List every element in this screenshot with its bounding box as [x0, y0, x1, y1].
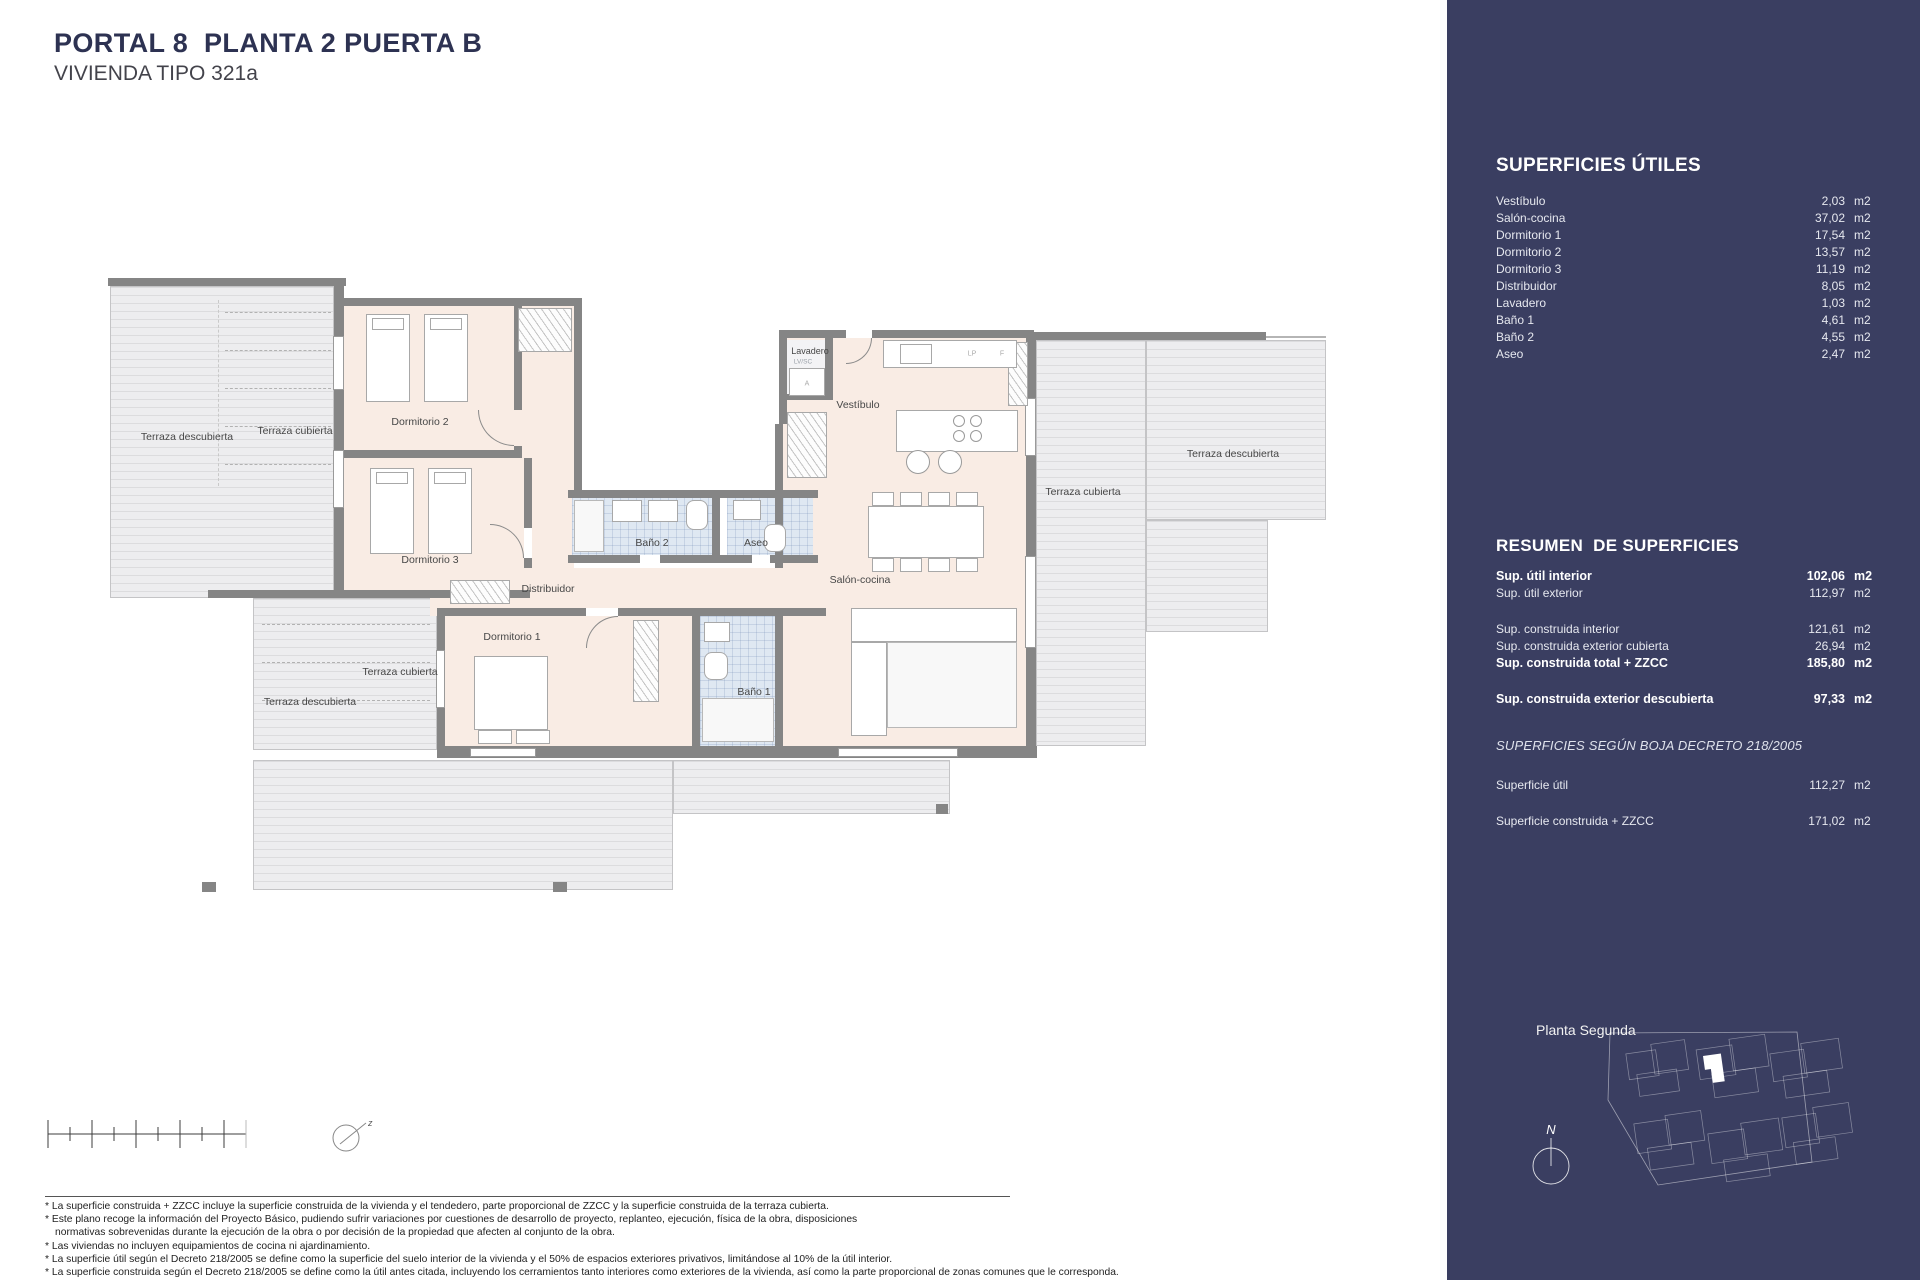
terrace-left-open-label: Terraza descubierta: [141, 431, 233, 443]
surface-row: Dormitorio 311,19m2: [1496, 261, 1878, 278]
door-gap: [586, 608, 618, 616]
surface-unit: m2: [1854, 691, 1878, 708]
surface-row: Sup. construida exterior descubierta97,3…: [1496, 691, 1878, 708]
svg-text:N: N: [1546, 1122, 1556, 1137]
surface-row: Baño 24,55m2: [1496, 329, 1878, 346]
surface-label: Dormitorio 1: [1496, 227, 1789, 244]
surface-unit: m2: [1854, 295, 1878, 312]
surface-label: Sup. construida total + ZZCC: [1496, 655, 1789, 672]
surface-row: Dormitorio 117,54m2: [1496, 227, 1878, 244]
surface-unit: m2: [1854, 568, 1878, 585]
bano1-label: Baño 1: [737, 686, 770, 698]
wardrobe: [450, 580, 510, 604]
chair: [928, 492, 950, 506]
kitchen-lp-label: LP: [968, 351, 977, 358]
cooktop-burner: [953, 415, 965, 427]
window: [436, 650, 445, 708]
door-gap: [752, 555, 770, 563]
surface-row: Sup. construida interior121,61m2: [1496, 621, 1878, 638]
surface-value: 17,54: [1789, 227, 1845, 244]
footnote-divider: [45, 1196, 1010, 1197]
wall: [108, 278, 346, 286]
kitchen-f-label: F: [1000, 351, 1004, 358]
surface-value: 185,80: [1789, 655, 1845, 672]
sink: [612, 500, 642, 522]
chair: [956, 558, 978, 572]
terrace-bottom-covered-label: Terraza cubierta: [362, 666, 437, 678]
surface-label: Superficie útil: [1496, 777, 1789, 794]
window: [333, 450, 344, 508]
footnote-line: * La superficie construida según el Decr…: [45, 1266, 1265, 1279]
footnote-line: * Este plano recoge la información del P…: [45, 1213, 1265, 1226]
resumen-table: Sup. útil interior102,06m2Sup. útil exte…: [1496, 568, 1878, 708]
wall: [208, 590, 344, 598]
surface-label: Dormitorio 2: [1496, 244, 1789, 261]
pergola-line: [262, 662, 430, 663]
lavadero-a-label: A: [805, 381, 810, 388]
surface-label: Baño 2: [1496, 329, 1789, 346]
surface-unit: m2: [1854, 655, 1878, 672]
deck-floor: [253, 760, 673, 890]
bano2-label: Baño 2: [635, 537, 668, 549]
surface-row: Vestíbulo2,03m2: [1496, 193, 1878, 210]
pillow: [434, 472, 466, 484]
sink: [733, 500, 761, 520]
door-gap: [640, 555, 660, 563]
surface-row: Sup. útil interior102,06m2: [1496, 568, 1878, 585]
sofa: [851, 608, 1017, 642]
compass-icon: z: [333, 1118, 373, 1151]
surface-unit: m2: [1854, 210, 1878, 227]
surface-value: 11,19: [1789, 261, 1845, 278]
chair: [956, 492, 978, 506]
dormitorio2-label: Dormitorio 2: [391, 416, 448, 428]
surface-row: Dormitorio 213,57m2: [1496, 244, 1878, 261]
surface-value: 8,05: [1789, 278, 1845, 295]
surface-label: Superficie construida + ZZCC: [1496, 813, 1789, 830]
dormitorio3-label: Dormitorio 3: [401, 554, 458, 566]
surface-row: Sup. construida exterior cubierta26,94m2: [1496, 638, 1878, 655]
surface-unit: m2: [1854, 777, 1878, 794]
surface-row: Aseo2,47m2: [1496, 346, 1878, 363]
surface-row: Distribuidor8,05m2: [1496, 278, 1878, 295]
superficies-utiles-table: Vestíbulo2,03m2Salón-cocina37,02m2Dormit…: [1496, 193, 1878, 363]
cooktop-burner: [953, 430, 965, 442]
pillow: [372, 318, 404, 330]
wall: [692, 616, 700, 746]
surface-unit: m2: [1854, 193, 1878, 210]
footnote-line: * La superficie útil según el Decreto 21…: [45, 1253, 1265, 1266]
wall: [344, 298, 582, 306]
distribuidor-label: Distribuidor: [521, 583, 574, 595]
chair: [872, 558, 894, 572]
parapet-line: [1266, 336, 1326, 338]
surface-label: Distribuidor: [1496, 278, 1789, 295]
surface-label: Sup. construida exterior descubierta: [1496, 691, 1789, 708]
surface-value: 13,57: [1789, 244, 1845, 261]
page-subtitle: VIVIENDA TIPO 321a: [54, 62, 258, 86]
wall: [437, 608, 826, 616]
wall: [574, 298, 582, 498]
aseo-label: Aseo: [744, 537, 768, 549]
stool: [938, 450, 962, 474]
bed: [474, 656, 548, 730]
scale-bar: z: [46, 1112, 386, 1162]
surface-value: 1,03: [1789, 295, 1845, 312]
surface-row: Baño 14,61m2: [1496, 312, 1878, 329]
resumen-title: RESUMEN DE SUPERFICIES: [1496, 536, 1878, 556]
pergola-line: [218, 300, 219, 486]
terrace-right-open-floor2: [1146, 520, 1268, 632]
wall: [334, 286, 344, 598]
kitchen-sink: [900, 344, 932, 364]
lavadero-sub-label: LV/SC: [794, 359, 812, 366]
surface-label: Sup. útil interior: [1496, 568, 1789, 585]
surface-row: Lavadero1,03m2: [1496, 295, 1878, 312]
chair: [900, 558, 922, 572]
surface-unit: m2: [1854, 621, 1878, 638]
footnote-line: * La superficie construida + ZZCC incluy…: [45, 1200, 1265, 1213]
surface-value: 37,02: [1789, 210, 1845, 227]
entrance-door-gap: [846, 330, 872, 338]
wall: [344, 450, 522, 458]
window: [1025, 398, 1036, 456]
superficies-utiles-section: SUPERFICIES ÚTILES Vestíbulo2,03m2Salón-…: [1496, 155, 1878, 363]
pillow: [478, 730, 512, 744]
site-plan-map: N: [1497, 1000, 1870, 1240]
building-outlines: [1625, 1034, 1856, 1183]
pergola-line: [225, 388, 331, 389]
surface-unit: m2: [1854, 278, 1878, 295]
surface-label: Sup. construida interior: [1496, 621, 1789, 638]
terrace-right-covered-floor: [1036, 340, 1146, 746]
cooktop-burner: [970, 430, 982, 442]
wall: [712, 497, 720, 555]
surface-unit: m2: [1854, 227, 1878, 244]
pergola-line: [262, 624, 430, 625]
sofa: [851, 642, 887, 736]
sink: [648, 500, 678, 522]
svg-text:z: z: [367, 1118, 373, 1128]
pillow: [430, 318, 462, 330]
surface-value: 4,61: [1789, 312, 1845, 329]
site-boundary: [1608, 1032, 1812, 1185]
surface-unit: m2: [1854, 329, 1878, 346]
surface-label: Sup. construida exterior cubierta: [1496, 638, 1789, 655]
surface-unit: m2: [1854, 585, 1878, 602]
wall: [779, 330, 1034, 338]
surface-label: Dormitorio 3: [1496, 261, 1789, 278]
lavadero-label: Lavadero: [791, 346, 829, 356]
chair: [928, 558, 950, 572]
sink: [704, 622, 730, 642]
terrace-left-covered-label: Terraza cubierta: [257, 425, 332, 437]
deck-post: [936, 804, 948, 814]
salon-cocina-label: Salón-cocina: [830, 574, 891, 586]
chair: [900, 492, 922, 506]
deck-post: [202, 882, 216, 892]
surface-row: Sup. construida total + ZZCC185,80m2: [1496, 655, 1878, 672]
terrace-bottom-open-label: Terraza descubierta: [264, 696, 356, 708]
pillow: [376, 472, 408, 484]
surface-value: 102,06: [1789, 568, 1845, 585]
wall: [779, 330, 787, 424]
surface-row: Salón-cocina37,02m2: [1496, 210, 1878, 227]
surface-label: Baño 1: [1496, 312, 1789, 329]
surface-unit: m2: [1854, 244, 1878, 261]
vestibulo-label: Vestíbulo: [836, 399, 879, 411]
superficies-utiles-title: SUPERFICIES ÚTILES: [1496, 155, 1878, 177]
resumen-section: RESUMEN DE SUPERFICIES Sup. útil interio…: [1496, 536, 1878, 708]
surface-unit: m2: [1854, 346, 1878, 363]
sofa-seat: [887, 642, 1017, 728]
north-arrow-icon: N: [1533, 1122, 1569, 1184]
surface-value: 4,55: [1789, 329, 1845, 346]
surface-label: Vestíbulo: [1496, 193, 1789, 210]
surface-value: 26,94: [1789, 638, 1845, 655]
surface-label: Salón-cocina: [1496, 210, 1789, 227]
boja-title: SUPERFICIES SEGÚN BOJA DECRETO 218/2005: [1496, 738, 1878, 753]
window: [1025, 556, 1036, 648]
pergola-line: [225, 350, 331, 351]
surface-value: 121,61: [1789, 621, 1845, 638]
chair: [872, 492, 894, 506]
pergola-line: [225, 312, 331, 313]
pergola-line: [225, 464, 331, 465]
boja-table: Superficie útil112,27m2Superficie constr…: [1496, 777, 1878, 830]
floor-plan-sheet: PORTAL 8 PLANTA 2 PUERTA B VIVIENDA TIPO…: [0, 0, 1920, 1280]
surface-value: 112,97: [1789, 585, 1845, 602]
door-gap: [524, 528, 532, 558]
terrace-right-open-floor: [1146, 340, 1326, 520]
surface-row: Superficie útil112,27m2: [1496, 777, 1878, 794]
pillow: [516, 730, 550, 744]
duct-shaft: [787, 412, 827, 478]
terrace-right-covered-label: Terraza cubierta: [1045, 486, 1120, 498]
sidebar: SUPERFICIES ÚTILES Vestíbulo2,03m2Salón-…: [1447, 0, 1920, 1280]
footnote-line: normativas sobrevenidas durante la ejecu…: [45, 1226, 1265, 1239]
surface-unit: m2: [1854, 261, 1878, 278]
surface-unit: m2: [1854, 813, 1878, 830]
wardrobe: [633, 620, 659, 702]
toilet: [704, 652, 728, 680]
footnote-line: * Las viviendas no incluyen equipamiento…: [45, 1240, 1265, 1253]
shower-tray: [702, 698, 774, 742]
wardrobe: [518, 308, 572, 352]
cooktop-burner: [970, 415, 982, 427]
surface-value: 2,03: [1789, 193, 1845, 210]
page-title: PORTAL 8 PLANTA 2 PUERTA B: [54, 28, 482, 59]
surface-value: 97,33: [1789, 691, 1845, 708]
window: [470, 748, 536, 757]
highlighted-unit: [1703, 1053, 1725, 1083]
surface-row: Superficie construida + ZZCC171,02m2: [1496, 813, 1878, 830]
stool: [906, 450, 930, 474]
toilet: [686, 500, 708, 530]
surface-unit: m2: [1854, 638, 1878, 655]
surface-label: Sup. útil exterior: [1496, 585, 1789, 602]
footnotes: * La superficie construida + ZZCC incluy…: [45, 1200, 1265, 1279]
sliding-door: [838, 748, 958, 757]
surface-value: 112,27: [1789, 777, 1845, 794]
terrace-right-open-label: Terraza descubierta: [1187, 448, 1279, 460]
surface-row: Sup. útil exterior112,97m2: [1496, 585, 1878, 602]
dormitorio1-label: Dormitorio 1: [483, 631, 540, 643]
wall: [1034, 332, 1266, 340]
dining-table: [868, 506, 984, 558]
wall: [775, 616, 783, 746]
boja-section: SUPERFICIES SEGÚN BOJA DECRETO 218/2005 …: [1496, 738, 1878, 830]
deck-floor-right: [673, 760, 950, 814]
surface-value: 2,47: [1789, 346, 1845, 363]
deck-post: [553, 882, 567, 892]
window: [333, 336, 344, 390]
surface-label: Lavadero: [1496, 295, 1789, 312]
surface-label: Aseo: [1496, 346, 1789, 363]
surface-value: 171,02: [1789, 813, 1845, 830]
surface-unit: m2: [1854, 312, 1878, 329]
shower-tray: [574, 500, 604, 552]
